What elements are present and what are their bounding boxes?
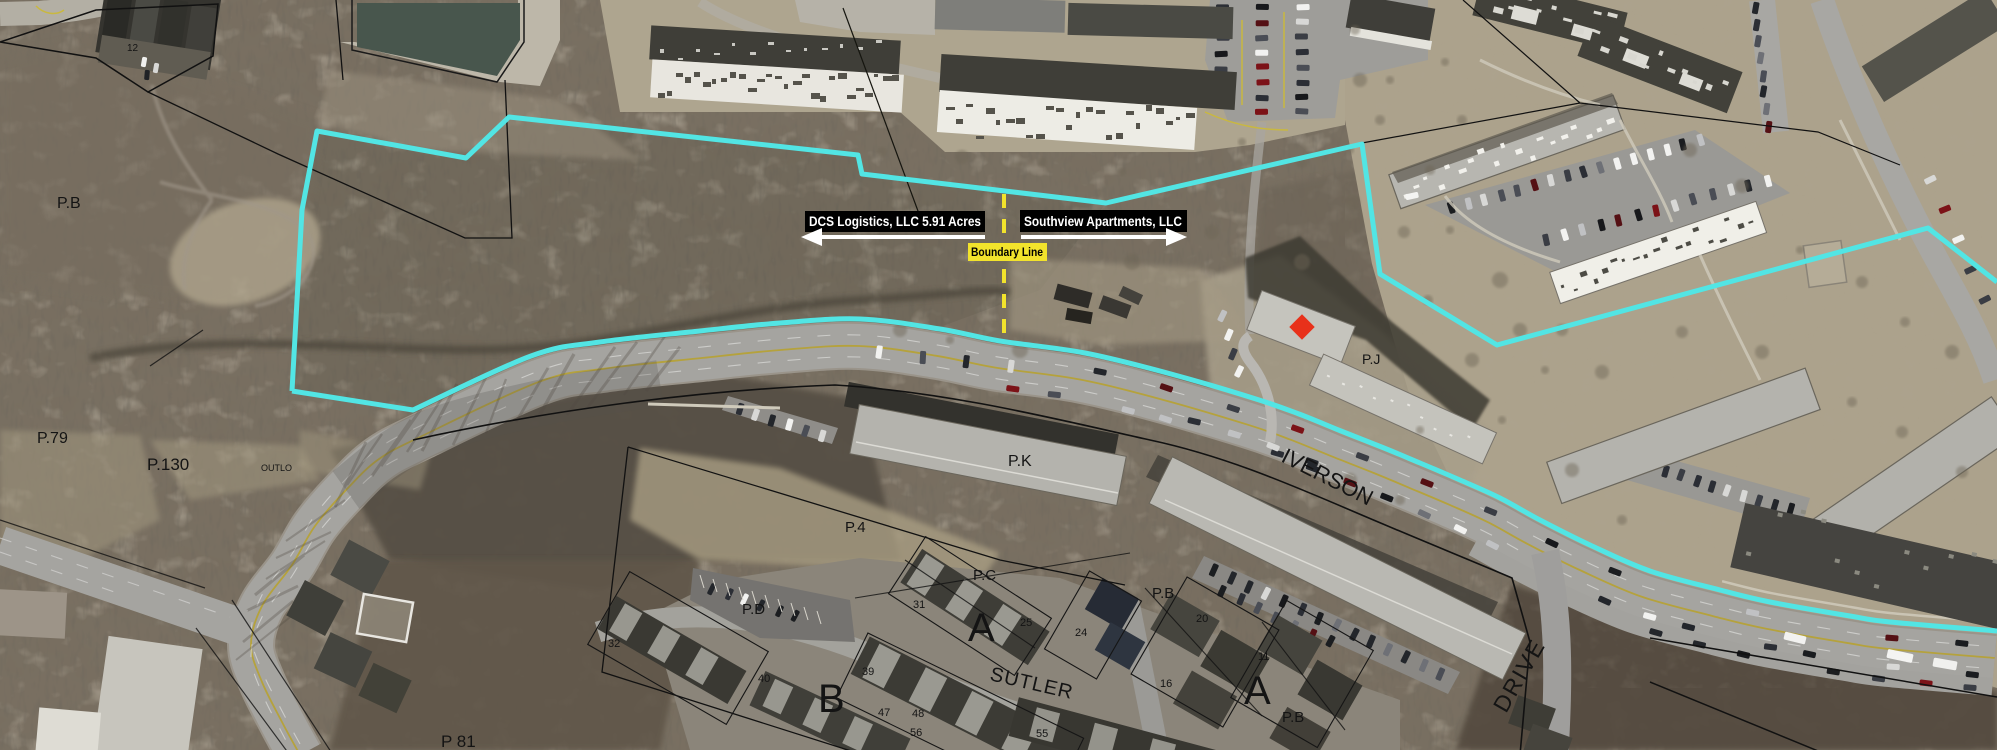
svg-text:56: 56 (910, 727, 922, 739)
svg-text:P.79: P.79 (37, 430, 68, 447)
svg-text:40: 40 (758, 673, 770, 685)
svg-text:P.D: P.D (742, 601, 765, 618)
svg-text:P.B: P.B (57, 195, 81, 212)
svg-text:P.B: P.B (1282, 709, 1304, 726)
svg-text:31: 31 (913, 599, 925, 611)
svg-text:P.130: P.130 (147, 455, 189, 474)
svg-text:Boundary Line: Boundary Line (971, 245, 1043, 259)
svg-text:B: B (818, 677, 845, 721)
svg-text:24: 24 (1075, 627, 1087, 639)
svg-text:P 81: P 81 (441, 732, 476, 750)
svg-text:P.K: P.K (1008, 453, 1032, 470)
svg-text:DCS Logistics, LLC 5.91 Acres: DCS Logistics, LLC 5.91 Acres (809, 214, 981, 229)
svg-text:P.C: P.C (973, 567, 996, 584)
svg-text:47: 47 (878, 707, 890, 719)
svg-text:OUTLO: OUTLO (261, 463, 292, 473)
svg-text:20: 20 (1196, 613, 1208, 625)
svg-text:11: 11 (1258, 651, 1269, 663)
svg-text:32: 32 (608, 638, 620, 650)
svg-text:P.B: P.B (1152, 585, 1174, 602)
svg-text:39: 39 (862, 666, 874, 678)
svg-text:A: A (1244, 669, 1271, 713)
svg-text:16: 16 (1160, 678, 1172, 690)
svg-text:55: 55 (1036, 728, 1048, 740)
svg-text:25: 25 (1020, 617, 1032, 629)
svg-text:Southview Apartments, LLC: Southview Apartments, LLC (1024, 214, 1182, 229)
svg-text:P.J: P.J (1362, 351, 1380, 367)
svg-text:48: 48 (912, 708, 924, 720)
svg-text:P.4: P.4 (845, 519, 866, 536)
svg-text:A: A (968, 606, 995, 650)
svg-text:12: 12 (127, 43, 139, 54)
